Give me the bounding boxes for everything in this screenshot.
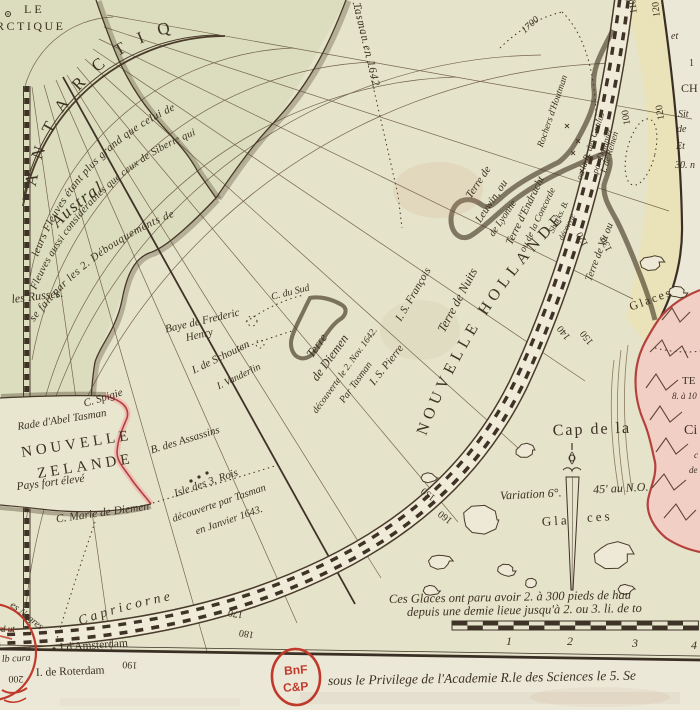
label-glaces-2b: ces bbox=[586, 508, 613, 525]
scale-bar-segment bbox=[621, 626, 636, 631]
edge-et2: Et bbox=[675, 141, 685, 152]
label-te-fragment: TE bbox=[682, 375, 696, 387]
scale-bar-segment bbox=[467, 626, 482, 631]
scale-bar-segment bbox=[498, 626, 513, 631]
longitude-190: 190 bbox=[122, 659, 138, 671]
scale-bar-segment bbox=[668, 621, 683, 626]
scanned-map-sheet: ANTARCTIQAustralleurs Fleuves étant plus… bbox=[0, 0, 700, 710]
longitude-120a: 120 bbox=[650, 1, 663, 17]
scale-num-2: 2 bbox=[567, 634, 573, 648]
scale-bar-segment bbox=[637, 621, 652, 626]
scale-bar-segment bbox=[452, 621, 467, 626]
scale-bar-segment bbox=[606, 621, 621, 626]
edge-1: 1 bbox=[689, 58, 694, 69]
bnf-stamp-line1: BnF bbox=[284, 662, 308, 678]
edge-30n: 30. n bbox=[674, 160, 695, 171]
scale-bar-segment bbox=[575, 621, 590, 626]
scale-num-4: 4 bbox=[691, 638, 697, 652]
scale-num-1: 1 bbox=[506, 634, 512, 648]
label-ci-fragment: Ci bbox=[684, 423, 697, 438]
scale-bar-segment bbox=[591, 626, 606, 631]
edge-d-ut: d ut bbox=[1, 624, 15, 634]
longitude-110: 110 bbox=[627, 0, 640, 14]
edge-b-cura: lb cura bbox=[2, 653, 31, 665]
longitude-200: 200 bbox=[8, 673, 23, 684]
label-8a10-fragment: 8. à 10 bbox=[672, 391, 697, 401]
label-cercle-rctique: RCTIQUE bbox=[0, 19, 66, 33]
scale-bar-segment bbox=[529, 626, 544, 631]
edge-sit: Sit bbox=[678, 109, 689, 120]
edge-de: de bbox=[677, 124, 687, 135]
scale-bar-segment bbox=[652, 626, 667, 631]
label-glaces-2a: Gla bbox=[541, 512, 570, 529]
map-canvas: ANTARCTIQAustralleurs Fleuves étant plus… bbox=[0, 0, 700, 710]
scale-bar-segment bbox=[683, 626, 698, 631]
edge-ch: CH bbox=[681, 81, 698, 95]
label-variation-b: 45' au N.O. bbox=[593, 480, 649, 497]
scale-bar-segment bbox=[544, 621, 559, 626]
scale-num-3: 3 bbox=[631, 636, 638, 650]
label-i-roterdam: I. de Roterdam bbox=[36, 665, 105, 679]
edge-et: et bbox=[671, 31, 678, 42]
scale-bar-segment bbox=[483, 621, 498, 626]
label-cap-de-la: Cap de la bbox=[552, 420, 631, 440]
label-c-fragment: c bbox=[694, 450, 698, 460]
ice-island-icon bbox=[526, 578, 537, 587]
scale-bar-segment bbox=[514, 621, 529, 626]
label-cercle-le: LE bbox=[24, 2, 45, 16]
bnf-stamp-line2: C&P bbox=[283, 679, 309, 695]
label-de-fragment: de bbox=[689, 465, 698, 475]
ice-island-icon bbox=[464, 505, 499, 534]
scale-bar-segment bbox=[560, 626, 575, 631]
